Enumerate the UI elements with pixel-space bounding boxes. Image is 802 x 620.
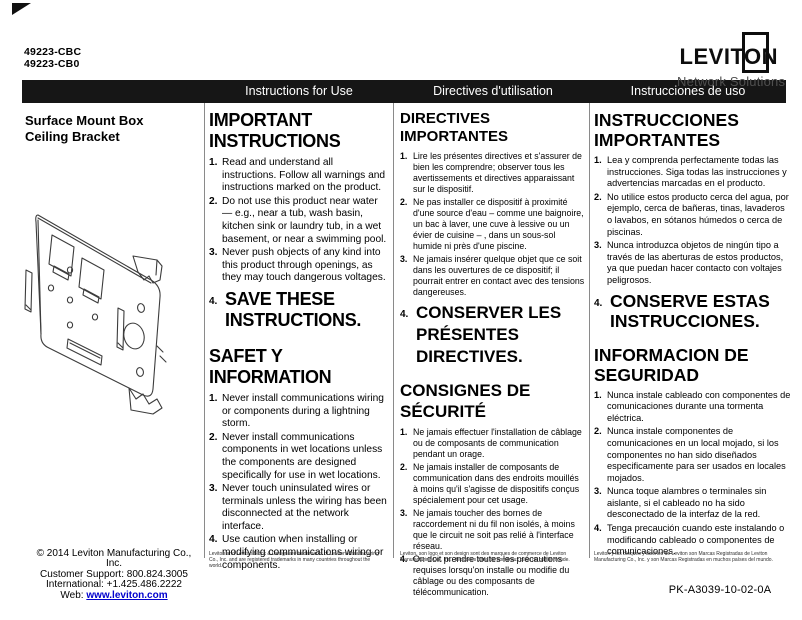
es-title-safety: INFORMACION DE SEGURIDAD xyxy=(594,345,792,385)
column-french: DIRECTIVES IMPORTANTES 1. Lire les prése… xyxy=(400,110,586,600)
document-code: PK-A3039-10-02-0A xyxy=(655,584,785,596)
en-save-instructions-heading: 4. SAVE THESE INSTRUCTIONS. xyxy=(209,289,390,331)
item-number: 2. xyxy=(209,432,218,445)
item-number: 1. xyxy=(594,390,602,402)
item-number: 4. xyxy=(594,523,602,535)
safety-item: 1. Ne jamais effectuer l'installation de… xyxy=(400,427,586,460)
trademark-footnote-french: Leviton, son logo et son design sont des… xyxy=(400,551,580,563)
website-link[interactable]: www.leviton.com xyxy=(86,590,167,601)
column-divider-2 xyxy=(393,103,394,558)
item-number: 3. xyxy=(400,508,407,519)
item-number: 1. xyxy=(209,157,218,170)
trademark-footnote-english: Leviton and Leviton Block & Design are t… xyxy=(209,551,381,569)
item-number: 2. xyxy=(400,197,407,208)
en-title-safety: SAFET Y INFORMATION xyxy=(209,346,390,388)
item-number: 3. xyxy=(594,240,602,252)
bracket-line-drawing xyxy=(10,186,202,428)
instruction-item: 1. Read and understand all instructions.… xyxy=(209,157,390,195)
item-number: 3. xyxy=(209,483,218,496)
item-number: 4. xyxy=(209,534,218,547)
safety-item: 3. Ne jamais toucher des bornes de racco… xyxy=(400,508,586,552)
es-title-important: INSTRUCCIONES IMPORTANTES xyxy=(594,110,792,150)
safety-item: 1. Nunca instale cableado con componente… xyxy=(594,390,792,425)
web-line: Web: www.leviton.com xyxy=(28,591,200,601)
fr-save-instructions-heading: 4. CONSERVER LES PRÉSENTES DIRECTIVES. xyxy=(400,302,586,368)
item-number: 4. xyxy=(209,296,217,309)
trademark-footnote-spanish: Leviton y los bloques y diseños de Levit… xyxy=(594,551,780,563)
product-title-line1: Surface Mount Box xyxy=(25,113,143,129)
instruction-item: 2. No utilice estos producto cerca del a… xyxy=(594,192,792,238)
safety-item: 1. Never install communications wiring o… xyxy=(209,393,390,431)
part-number-1: 49223-CBC xyxy=(24,46,81,58)
product-title-line2: Ceiling Bracket xyxy=(25,129,143,145)
logo-tagline: Network Solutions xyxy=(677,74,785,89)
item-number: 3. xyxy=(594,486,602,498)
bar-label-french: Directives d'utilisation xyxy=(397,84,589,98)
instruction-item: 2. Do not use this product near water — … xyxy=(209,196,390,246)
item-number: 2. xyxy=(209,196,218,209)
instruction-item: 1. Lire les présentes directives et s'as… xyxy=(400,151,586,195)
item-number: 1. xyxy=(400,427,407,438)
item-number: 1. xyxy=(400,151,407,162)
bar-label-english: Instructions for Use xyxy=(205,84,393,98)
column-spanish: INSTRUCCIONES IMPORTANTES 1. Lea y compr… xyxy=(594,110,792,560)
logo-o-box xyxy=(742,32,769,73)
item-number: 4. xyxy=(594,298,602,310)
item-number: 3. xyxy=(400,254,407,265)
instruction-item: 3. Nunca introduzca objetos de ningún ti… xyxy=(594,240,792,286)
column-divider-3 xyxy=(589,103,590,558)
item-number: 2. xyxy=(594,192,602,204)
safety-item: 2. Nunca instale componentes de comunica… xyxy=(594,426,792,484)
safety-item: 2. Never install communications componen… xyxy=(209,432,390,482)
item-number: 4. xyxy=(400,309,408,320)
column-divider-1 xyxy=(204,103,205,558)
instruction-sheet-page: 49223-CBC 49223-CB0 LEVITON Network Solu… xyxy=(0,0,802,620)
item-number: 2. xyxy=(400,462,407,473)
safety-item: 2. Ne jamais installer de composants de … xyxy=(400,462,586,506)
part-numbers: 49223-CBC 49223-CB0 xyxy=(24,46,81,70)
item-number: 3. xyxy=(209,247,218,260)
fr-title-important: DIRECTIVES IMPORTANTES xyxy=(400,110,586,146)
part-number-2: 49223-CB0 xyxy=(24,58,81,70)
item-number: 1. xyxy=(594,155,602,167)
item-number: 1. xyxy=(209,393,218,406)
copyright-line: © 2014 Leviton Manufacturing Co., Inc. xyxy=(28,549,200,570)
safety-item: 3. Never touch uninsulated wires or term… xyxy=(209,483,390,533)
instruction-item: 3. Never push objects of any kind into t… xyxy=(209,247,390,285)
en-title-important: IMPORTANT INSTRUCTIONS xyxy=(209,110,390,152)
column-english: IMPORTANT INSTRUCTIONS 1. Read and under… xyxy=(209,110,390,573)
web-label: Web: xyxy=(60,590,86,601)
item-number: 2. xyxy=(594,426,602,438)
instruction-item: 3. Ne jamais insérer quelque objet que c… xyxy=(400,254,586,298)
corner-triangle-mark xyxy=(12,3,31,15)
instruction-item: 1. Lea y comprenda perfectamente todas l… xyxy=(594,155,792,190)
fr-title-safety: CONSIGNES DE SÉCURITÉ xyxy=(400,380,586,422)
safety-item: 3. Nunca toque alambres o terminales sin… xyxy=(594,486,792,521)
product-title: Surface Mount Box Ceiling Bracket xyxy=(25,113,143,145)
es-save-instructions-heading: 4. CONSERVE ESTAS INSTRUCCIONES. xyxy=(594,291,792,331)
contact-block: © 2014 Leviton Manufacturing Co., Inc. C… xyxy=(28,549,200,601)
instruction-item: 2. Ne pas installer ce dispositif à prox… xyxy=(400,197,586,252)
